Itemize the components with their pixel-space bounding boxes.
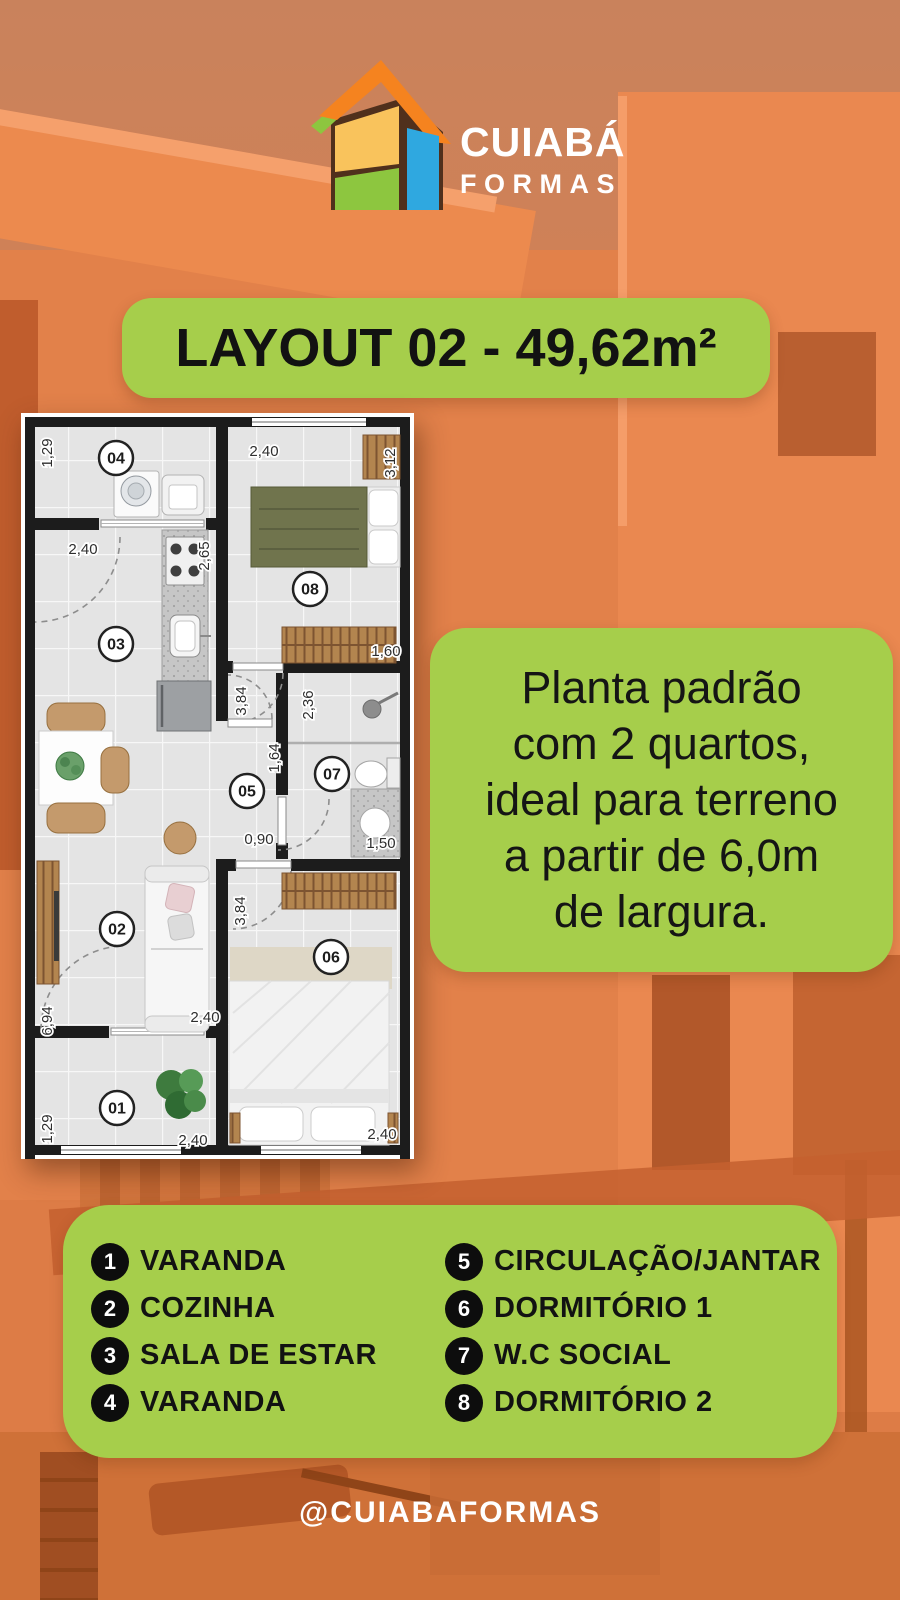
legend-number-badge: 3 xyxy=(91,1337,129,1375)
dimension-label: 2,40 xyxy=(190,1009,219,1026)
floorplan: 0408030507020601 1,292,402,403,122,651,6… xyxy=(21,413,414,1159)
room-number: 04 xyxy=(107,451,125,468)
floorplan-drawing: 0408030507020601 1,292,402,403,122,651,6… xyxy=(21,413,414,1159)
dimension-label: 2,40 xyxy=(367,1126,396,1143)
legend-label: COZINHA xyxy=(140,1292,276,1325)
legend-label: DORMITÓRIO 2 xyxy=(494,1386,713,1419)
legend-item: 4VARANDA xyxy=(91,1379,421,1426)
dimension-label: 1,50 xyxy=(366,835,395,852)
footer: @CUIABAFORMAS xyxy=(0,1496,900,1530)
legend-item: 7W.C SOCIAL xyxy=(445,1332,825,1379)
legend-number-badge: 1 xyxy=(91,1243,129,1281)
legend-box: 1VARANDA2COZINHA3SALA DE ESTAR4VARANDA 5… xyxy=(63,1205,837,1458)
legend-number-badge: 2 xyxy=(91,1290,129,1328)
legend-number-badge: 8 xyxy=(445,1384,483,1422)
layout-title: LAYOUT 02 - 49,62m² xyxy=(175,317,716,379)
brand-subname: FORMAS xyxy=(460,169,625,200)
legend-label: W.C SOCIAL xyxy=(494,1339,671,1372)
dimension-label: 3,84 xyxy=(232,896,249,925)
instagram-handle: @CUIABAFORMAS xyxy=(299,1496,601,1529)
legend-label: SALA DE ESTAR xyxy=(140,1339,377,1372)
room-number: 01 xyxy=(108,1101,126,1118)
legend-number-badge: 5 xyxy=(445,1243,483,1281)
description-box: Planta padrão com 2 quartos, ideal para … xyxy=(430,628,893,972)
dimension-label: 1,29 xyxy=(39,1114,56,1143)
dimension-label: 2,40 xyxy=(178,1132,207,1149)
layout-title-banner: LAYOUT 02 - 49,62m² xyxy=(122,298,770,398)
room-number: 03 xyxy=(107,637,125,654)
legend-column-left: 1VARANDA2COZINHA3SALA DE ESTAR4VARANDA xyxy=(91,1238,421,1426)
house-logo-icon xyxy=(310,60,452,210)
legend-label: VARANDA xyxy=(140,1245,286,1278)
legend-item: 1VARANDA xyxy=(91,1238,421,1285)
dimension-label: 6,94 xyxy=(39,1006,56,1035)
dimension-label: 1,60 xyxy=(371,643,400,660)
dimension-label: 1,64 xyxy=(266,743,283,772)
legend-item: 6DORMITÓRIO 1 xyxy=(445,1285,825,1332)
legend-label: CIRCULAÇÃO/JANTAR xyxy=(494,1245,821,1278)
room-number: 06 xyxy=(322,950,340,967)
dimension-label: 1,29 xyxy=(39,438,56,467)
legend-item: 8DORMITÓRIO 2 xyxy=(445,1379,825,1426)
room-number: 02 xyxy=(108,922,126,939)
dimension-label: 2,65 xyxy=(196,541,213,570)
legend-number-badge: 6 xyxy=(445,1290,483,1328)
description-text: Planta padrão com 2 quartos, ideal para … xyxy=(485,660,838,940)
dimension-label: 3,12 xyxy=(382,448,399,477)
legend-number-badge: 4 xyxy=(91,1384,129,1422)
room-number: 07 xyxy=(323,767,341,784)
legend-item: 3SALA DE ESTAR xyxy=(91,1332,421,1379)
legend-number-badge: 7 xyxy=(445,1337,483,1375)
room-number: 05 xyxy=(238,784,256,801)
room-number: 08 xyxy=(301,582,319,599)
dimension-label: 2,36 xyxy=(300,690,317,719)
dimension-label: 2,40 xyxy=(249,443,278,460)
legend-label: VARANDA xyxy=(140,1386,286,1419)
legend-column-right: 5CIRCULAÇÃO/JANTAR6DORMITÓRIO 17W.C SOCI… xyxy=(445,1238,825,1426)
brand-logo: CUIABÁ FORMAS xyxy=(310,60,640,212)
legend-label: DORMITÓRIO 1 xyxy=(494,1292,713,1325)
legend-item: 2COZINHA xyxy=(91,1285,421,1332)
dimension-label: 2,40 xyxy=(68,541,97,558)
legend-item: 5CIRCULAÇÃO/JANTAR xyxy=(445,1238,825,1285)
dimension-label: 0,90 xyxy=(244,831,273,848)
dimension-label: 3,84 xyxy=(233,686,250,715)
brand-name: CUIABÁ xyxy=(460,122,625,163)
